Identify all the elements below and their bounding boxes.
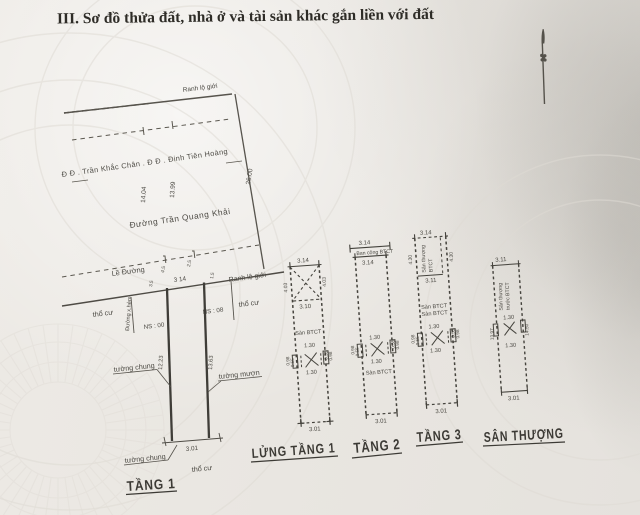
svg-text:3.14: 3.14 xyxy=(362,260,375,267)
svg-text:Sân thượng: Sân thượng xyxy=(498,283,505,311)
svg-text:3.11: 3.11 xyxy=(495,257,507,264)
svg-text:3.14: 3.14 xyxy=(297,258,310,265)
svg-text:3 14: 3 14 xyxy=(173,275,187,284)
svg-text:1.30: 1.30 xyxy=(369,335,380,342)
svg-text:3.01: 3.01 xyxy=(185,445,198,453)
svg-text:BTCT: BTCT xyxy=(428,258,434,273)
svg-text:III. Sơ đồ thửa đất, nhà ở và: III. Sơ đồ thửa đất, nhà ở và tài sản kh… xyxy=(57,6,435,28)
svg-text:3.5: 3.5 xyxy=(148,280,154,288)
svg-text:Đ Đ . Trần Khắc Chân . Đ Đ . Đ: Đ Đ . Trần Khắc Chân . Đ Đ . Đinh Tiên H… xyxy=(61,147,228,179)
svg-text:4.30: 4.30 xyxy=(449,252,455,262)
svg-text:thổ cư: thổ cư xyxy=(238,298,260,309)
svg-text:1.30: 1.30 xyxy=(304,343,315,350)
svg-text:1.5: 1.5 xyxy=(209,272,215,280)
svg-text:0.55: 0.55 xyxy=(290,358,295,368)
svg-text:0.55: 0.55 xyxy=(450,328,455,338)
svg-text:trước BTCT: trước BTCT xyxy=(505,281,512,310)
svg-text:2.5: 2.5 xyxy=(186,259,193,267)
svg-text:thổ cư: thổ cư xyxy=(191,463,212,474)
svg-text:Sàn BTCT: Sàn BTCT xyxy=(366,369,393,377)
svg-text:0.98: 0.98 xyxy=(328,351,333,361)
svg-text:1.30: 1.30 xyxy=(430,348,441,355)
svg-text:14.50: 14.50 xyxy=(524,323,530,336)
svg-text:Sân thượng: Sân thượng xyxy=(421,245,428,273)
svg-text:Đường Trần Quang Khải: Đường Trần Quang Khải xyxy=(129,206,231,230)
svg-text:LỬNG TẦNG 1: LỬNG TẦNG 1 xyxy=(251,440,336,461)
svg-text:0.98: 0.98 xyxy=(395,340,400,350)
svg-text:3.01: 3.01 xyxy=(309,426,322,433)
svg-text:Sàn BTCT: Sàn BTCT xyxy=(421,310,448,318)
svg-text:12.23: 12.23 xyxy=(158,355,165,370)
svg-text:3.10: 3.10 xyxy=(299,304,312,311)
svg-text:13.99: 13.99 xyxy=(169,181,177,198)
svg-text:SÂN THƯỢNG: SÂN THƯỢNG xyxy=(483,424,564,445)
svg-text:0.55: 0.55 xyxy=(323,350,328,360)
svg-text:1.30: 1.30 xyxy=(505,343,516,350)
svg-text:14.04: 14.04 xyxy=(140,186,148,203)
svg-text:4.03: 4.03 xyxy=(283,282,289,292)
svg-text:0.55: 0.55 xyxy=(415,336,420,346)
svg-text:0.98: 0.98 xyxy=(455,329,460,339)
svg-text:3.01: 3.01 xyxy=(375,418,388,425)
svg-text:1.30: 1.30 xyxy=(503,315,514,322)
svg-text:0.55: 0.55 xyxy=(390,339,395,349)
svg-text:thổ cư: thổ cư xyxy=(92,308,114,319)
svg-text:Đường x.hẻm: Đường x.hẻm xyxy=(125,296,133,331)
svg-text:13.63: 13.63 xyxy=(208,355,215,370)
svg-text:0.55: 0.55 xyxy=(355,347,360,357)
svg-text:3.11: 3.11 xyxy=(425,278,437,285)
svg-text:13.97: 13.97 xyxy=(489,328,495,341)
svg-text:Sàn BTCT: Sàn BTCT xyxy=(295,329,322,337)
svg-text:4.03: 4.03 xyxy=(322,277,328,287)
svg-text:3.01: 3.01 xyxy=(435,408,448,415)
svg-text:3.01: 3.01 xyxy=(508,395,521,402)
svg-text:3.14: 3.14 xyxy=(358,240,371,247)
svg-text:1.30: 1.30 xyxy=(371,359,382,366)
svg-text:4.5: 4.5 xyxy=(160,265,167,273)
svg-text:1.30: 1.30 xyxy=(428,324,439,331)
svg-text:4.30: 4.30 xyxy=(408,255,414,265)
svg-text:3.14: 3.14 xyxy=(420,230,433,237)
svg-text:1.30: 1.30 xyxy=(306,370,317,377)
svg-text:NS : 00: NS : 00 xyxy=(143,321,165,331)
svg-text:Ranh lộ giới: Ranh lộ giới xyxy=(182,83,218,94)
